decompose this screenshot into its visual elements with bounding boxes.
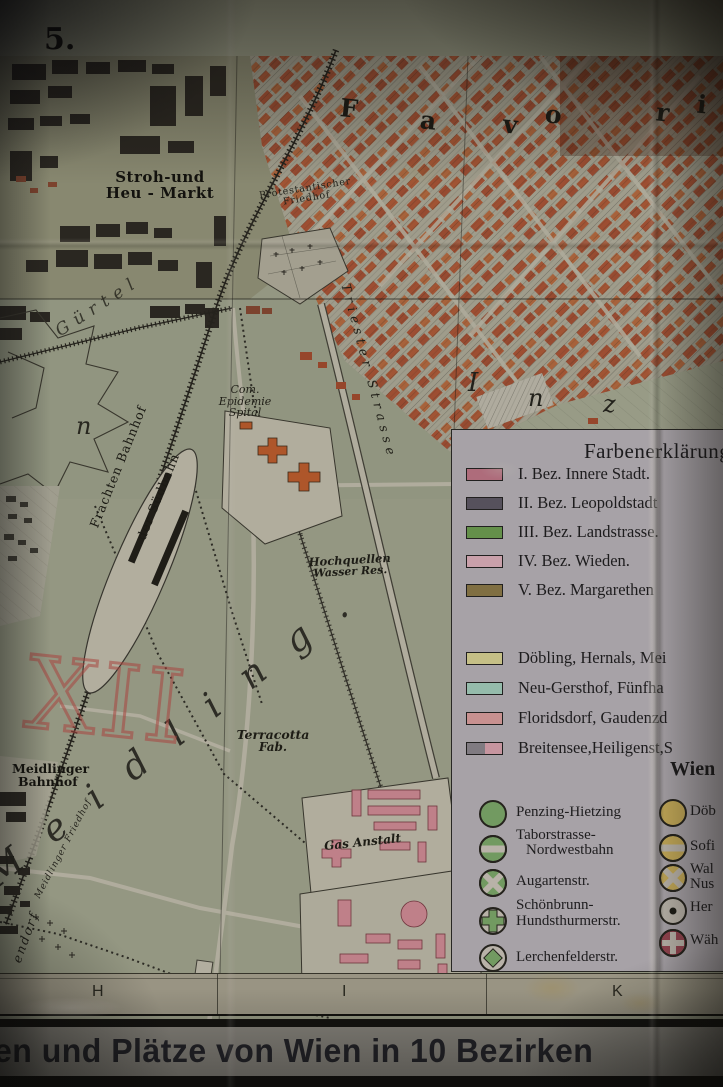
station-symbol-diamond-circle xyxy=(478,943,508,973)
handwritten-xii-mark: XII xyxy=(21,640,193,761)
vienna-map-photo: 5. Stroh-und Heu - Markt Protestantische… xyxy=(0,0,723,1087)
station-symbol-band-circle xyxy=(658,833,688,863)
station-label: Döb xyxy=(690,804,716,820)
station-symbol-saltire-circle xyxy=(478,868,508,898)
station-label: Wäh xyxy=(690,933,718,949)
legend-title: Farbenerklärung xyxy=(584,439,723,464)
title-rule-thin xyxy=(0,1014,723,1016)
grid-letter: H xyxy=(92,983,104,1001)
favoriten-letter: i xyxy=(696,92,708,119)
grid-separator xyxy=(217,974,218,1015)
station-symbol-band-circle xyxy=(478,834,508,864)
district-label: V. Bez. Margarethen xyxy=(518,580,654,600)
station-label: Nordwestbahn xyxy=(526,843,613,859)
district-label: I. Bez. Innere Stadt. xyxy=(518,464,650,484)
vorort-label: Neu-Gersthof, Fünfha xyxy=(518,678,664,698)
color-swatch xyxy=(466,468,503,481)
split-color-swatch xyxy=(466,742,503,755)
label-triester-strasse: Triester Strasse xyxy=(339,282,399,461)
color-swatch xyxy=(466,555,503,568)
color-swatch xyxy=(466,584,503,597)
map-title-strip: en und Plätze von Wien in 10 Bezirken xyxy=(0,1027,723,1076)
station-label: Sofi xyxy=(690,839,715,855)
legend-district-row: V. Bez. Margarethen xyxy=(466,580,654,600)
title-rule-thick xyxy=(0,1019,723,1027)
favoriten-letter: a xyxy=(419,107,438,135)
legend-vorort-row: Döbling, Hernals, Mei xyxy=(466,648,666,668)
favoriten-letter: F xyxy=(339,95,359,123)
label-large-letter-n: n xyxy=(76,414,91,439)
legend-district-row: IV. Bez. Wieden. xyxy=(466,551,630,571)
label-guertel: Gürtel xyxy=(53,273,144,341)
color-swatch xyxy=(466,526,503,539)
label-gas-anstalt: Gas Anstalt xyxy=(324,832,402,853)
station-symbol-filled-circle xyxy=(478,799,508,829)
station-label: Lerchenfelderstr. xyxy=(516,950,618,966)
label-epidemie-spital: Com. Epidemie Spital xyxy=(203,384,287,419)
label-terracotta-fabrik: Terracotta Fab. xyxy=(226,728,320,754)
district-label: II. Bez. Leopoldstadt xyxy=(518,493,657,513)
station-symbol-saltire-circle xyxy=(658,863,688,893)
station-label: Penzing-Hietzing xyxy=(516,805,621,821)
favoriten-letter: v xyxy=(502,111,519,139)
vorort-label: Floridsdorf, Gaudenzd xyxy=(518,708,667,728)
district-label: III. Bez. Landstrasse. xyxy=(518,522,659,542)
label-hochquellen-wasser-reservoir: Hochquellen Wasser Res. xyxy=(287,551,412,581)
label-protestantischer-friedhof: Protestantischer Friedhof xyxy=(257,177,355,212)
bottom-black-edge xyxy=(0,1076,723,1087)
color-swatch xyxy=(466,497,503,510)
legend-vorort-row: Floridsdorf, Gaudenzd xyxy=(466,708,667,728)
color-swatch xyxy=(466,682,503,695)
map-title-text: en und Plätze von Wien in 10 Bezirken xyxy=(0,1032,593,1070)
station-label: Her xyxy=(690,900,713,916)
inz-letter: I xyxy=(468,370,478,397)
label-meidlinger-bahnhof: Meidlinger Bahnhof xyxy=(12,762,89,788)
label-der-suedbahn: der Südbahn xyxy=(129,437,188,557)
station-label: Schönbrunn- xyxy=(516,898,594,914)
legend-district-row: III. Bez. Landstrasse. xyxy=(466,522,659,542)
station-label: Nus xyxy=(690,877,714,893)
legend-box: Farbenerklärung I. Bez. Innere Stadt. II… xyxy=(451,429,723,972)
vorort-label: Breitensee,Heiligenst,S xyxy=(518,738,673,758)
station-label: Augartenstr. xyxy=(516,874,590,890)
legend-district-row: I. Bez. Innere Stadt. xyxy=(466,464,650,484)
station-symbol-white-cross-circle xyxy=(658,928,688,958)
grid-letter: K xyxy=(612,983,623,1001)
map-grid-index-band: H I K xyxy=(0,973,723,1014)
legend-district-row: II. Bez. Leopoldstadt xyxy=(466,493,657,513)
color-swatch xyxy=(466,712,503,725)
district-label: IV. Bez. Wieden. xyxy=(518,551,630,571)
color-swatch xyxy=(466,652,503,665)
station-symbol-dot-circle xyxy=(658,896,688,926)
inz-letter: n xyxy=(528,386,543,411)
grid-letter: I xyxy=(342,983,346,1001)
label-stroh-heu-markt: Stroh-und Heu - Markt xyxy=(98,170,222,202)
favoriten-letter: r xyxy=(655,99,671,126)
station-symbol-filled-circle xyxy=(658,798,688,828)
inz-letter: z xyxy=(603,392,616,417)
favoriten-letter: o xyxy=(544,101,563,129)
vorort-label: Döbling, Hernals, Mei xyxy=(518,648,666,668)
legend-vorort-row: Breitensee,Heiligenst,S xyxy=(466,738,673,758)
sheet-number: 5. xyxy=(44,24,75,56)
station-symbol-cross-circle xyxy=(478,906,508,936)
label-endorf: endorf xyxy=(10,910,41,965)
legend-vorort-row: Neu-Gersthof, Fünfha xyxy=(466,678,664,698)
station-label: Hundsthurmerstr. xyxy=(516,914,621,930)
grid-separator xyxy=(486,974,487,1015)
legend-wien-heading: Wien xyxy=(670,758,715,781)
